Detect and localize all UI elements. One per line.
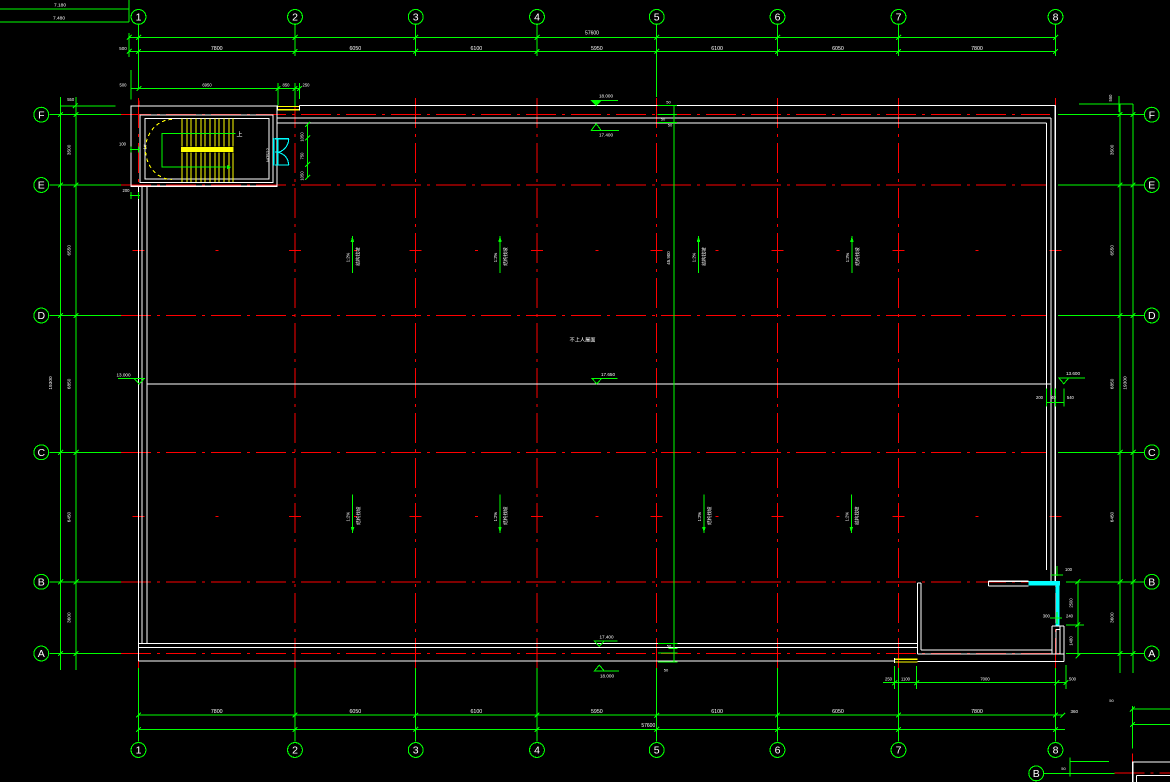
svg-text:F: F bbox=[38, 109, 44, 121]
svg-text:6100: 6100 bbox=[470, 709, 482, 715]
svg-text:19300: 19300 bbox=[1123, 376, 1129, 390]
svg-text:B: B bbox=[38, 577, 45, 589]
svg-text:D: D bbox=[38, 310, 46, 322]
svg-text:1:2%: 1:2% bbox=[346, 512, 351, 522]
svg-text:1100: 1100 bbox=[901, 676, 911, 681]
svg-text:500: 500 bbox=[120, 83, 128, 88]
svg-text:结构找坡: 结构找坡 bbox=[355, 506, 362, 525]
svg-text:6100: 6100 bbox=[711, 709, 723, 715]
svg-text:50: 50 bbox=[664, 668, 669, 673]
svg-text:1:2%: 1:2% bbox=[345, 252, 350, 262]
svg-text:6050: 6050 bbox=[832, 709, 844, 715]
svg-text:结构找坡: 结构找坡 bbox=[701, 247, 708, 266]
svg-text:7800: 7800 bbox=[971, 709, 983, 715]
svg-text:2: 2 bbox=[292, 12, 298, 24]
svg-text:3500: 3500 bbox=[1110, 144, 1115, 155]
svg-text:上: 上 bbox=[236, 131, 242, 139]
svg-text:1480: 1480 bbox=[1069, 636, 1074, 646]
svg-text:100: 100 bbox=[1065, 567, 1073, 572]
svg-text:3: 3 bbox=[413, 745, 419, 757]
svg-text:6850: 6850 bbox=[67, 378, 72, 389]
svg-text:7000: 7000 bbox=[980, 676, 990, 681]
svg-text:3600: 3600 bbox=[1110, 612, 1115, 623]
svg-text:结构找坡: 结构找坡 bbox=[502, 506, 509, 525]
svg-text:50: 50 bbox=[667, 644, 672, 649]
svg-text:17.400: 17.400 bbox=[599, 133, 613, 138]
svg-text:360: 360 bbox=[1071, 709, 1079, 714]
svg-text:1:2%: 1:2% bbox=[844, 512, 849, 522]
svg-text:17.650: 17.650 bbox=[601, 372, 615, 377]
svg-text:1:2%: 1:2% bbox=[493, 252, 498, 262]
svg-text:1050: 1050 bbox=[300, 171, 305, 181]
svg-text:1: 1 bbox=[136, 745, 142, 757]
svg-text:结构找坡: 结构找坡 bbox=[854, 506, 861, 525]
svg-text:13.600: 13.600 bbox=[1066, 371, 1080, 376]
svg-text:7800: 7800 bbox=[971, 46, 983, 52]
svg-text:57600: 57600 bbox=[641, 723, 655, 729]
svg-text:1:2%: 1:2% bbox=[692, 252, 697, 262]
svg-text:6050: 6050 bbox=[832, 46, 844, 52]
svg-text:5: 5 bbox=[654, 745, 660, 757]
svg-text:C: C bbox=[38, 447, 46, 459]
svg-text:6850: 6850 bbox=[1110, 378, 1115, 389]
svg-text:7: 7 bbox=[896, 745, 902, 757]
svg-text:57600: 57600 bbox=[585, 31, 599, 37]
svg-text:C: C bbox=[1148, 447, 1156, 459]
svg-text:E: E bbox=[1148, 180, 1155, 192]
svg-text:2: 2 bbox=[292, 745, 298, 757]
svg-text:850: 850 bbox=[283, 83, 291, 88]
svg-text:3500: 3500 bbox=[67, 144, 72, 155]
svg-text:50: 50 bbox=[668, 123, 673, 128]
svg-text:200: 200 bbox=[1036, 395, 1044, 400]
svg-text:E: E bbox=[38, 180, 45, 192]
svg-text:B: B bbox=[1148, 577, 1155, 589]
svg-text:5950: 5950 bbox=[591, 46, 603, 52]
svg-text:50: 50 bbox=[1061, 766, 1066, 771]
svg-text:240: 240 bbox=[1066, 614, 1074, 619]
svg-text:6100: 6100 bbox=[470, 46, 482, 52]
svg-text:结构找坡: 结构找坡 bbox=[355, 247, 362, 266]
svg-text:200: 200 bbox=[123, 188, 131, 193]
svg-text:40: 40 bbox=[1051, 395, 1056, 400]
svg-text:500: 500 bbox=[1069, 676, 1077, 681]
svg-text:6100: 6100 bbox=[711, 46, 723, 52]
svg-text:4: 4 bbox=[534, 745, 540, 757]
svg-text:250: 250 bbox=[303, 83, 311, 88]
svg-text:2500: 2500 bbox=[1069, 598, 1074, 608]
svg-text:13.000: 13.000 bbox=[116, 372, 130, 377]
svg-text:A: A bbox=[38, 648, 45, 660]
svg-text:结构找坡: 结构找坡 bbox=[706, 506, 713, 525]
svg-text:6: 6 bbox=[775, 745, 781, 757]
svg-text:B: B bbox=[1033, 768, 1040, 780]
svg-text:结构找坡: 结构找坡 bbox=[502, 247, 509, 266]
svg-text:4: 4 bbox=[534, 12, 540, 24]
svg-text:7800: 7800 bbox=[211, 46, 223, 52]
svg-text:18.000: 18.000 bbox=[599, 94, 613, 99]
svg-text:5: 5 bbox=[654, 12, 660, 24]
svg-text:8: 8 bbox=[1053, 12, 1059, 24]
svg-text:540: 540 bbox=[1067, 395, 1075, 400]
svg-text:1: 1 bbox=[136, 12, 142, 24]
svg-text:50: 50 bbox=[1109, 698, 1114, 703]
svg-text:6050: 6050 bbox=[349, 709, 361, 715]
svg-text:19300: 19300 bbox=[48, 376, 54, 390]
svg-text:7.480: 7.480 bbox=[53, 16, 65, 22]
svg-text:45.900: 45.900 bbox=[666, 251, 671, 265]
svg-text:6950: 6950 bbox=[202, 83, 212, 88]
svg-text:6050: 6050 bbox=[349, 46, 361, 52]
svg-text:5950: 5950 bbox=[591, 709, 603, 715]
svg-text:1050: 1050 bbox=[300, 132, 305, 142]
svg-text:7.180: 7.180 bbox=[54, 3, 66, 9]
svg-text:6450: 6450 bbox=[1110, 511, 1115, 522]
svg-text:300: 300 bbox=[1043, 614, 1051, 619]
svg-text:1:2%: 1:2% bbox=[493, 512, 498, 522]
svg-text:6550: 6550 bbox=[67, 245, 72, 256]
svg-text:1:2%: 1:2% bbox=[697, 512, 702, 522]
svg-text:750: 750 bbox=[300, 152, 305, 160]
svg-text:7: 7 bbox=[896, 12, 902, 24]
svg-text:550: 550 bbox=[67, 97, 75, 102]
svg-text:F: F bbox=[1149, 109, 1155, 121]
svg-text:1:2%: 1:2% bbox=[845, 252, 850, 262]
svg-text:250: 250 bbox=[885, 676, 893, 681]
svg-text:1#: 1# bbox=[143, 144, 148, 150]
svg-text:7800: 7800 bbox=[211, 709, 223, 715]
svg-text:结构找坡: 结构找坡 bbox=[854, 247, 861, 266]
svg-text:6: 6 bbox=[775, 12, 781, 24]
svg-text:不上人屋面: 不上人屋面 bbox=[570, 336, 596, 344]
svg-text:6450: 6450 bbox=[67, 511, 72, 522]
svg-text:M7522: M7522 bbox=[266, 148, 271, 162]
svg-text:3600: 3600 bbox=[67, 612, 72, 623]
svg-text:3: 3 bbox=[413, 12, 419, 24]
svg-text:550: 550 bbox=[1108, 94, 1113, 102]
svg-text:17.400: 17.400 bbox=[599, 635, 613, 640]
svg-text:100: 100 bbox=[119, 142, 127, 147]
svg-text:8: 8 bbox=[1053, 745, 1059, 757]
svg-text:500: 500 bbox=[119, 46, 127, 51]
svg-text:50: 50 bbox=[666, 100, 671, 105]
svg-text:18.000: 18.000 bbox=[600, 674, 614, 679]
svg-text:A: A bbox=[1148, 648, 1155, 660]
svg-text:D: D bbox=[1148, 310, 1156, 322]
svg-text:50: 50 bbox=[661, 117, 666, 122]
svg-text:6550: 6550 bbox=[1110, 245, 1115, 256]
